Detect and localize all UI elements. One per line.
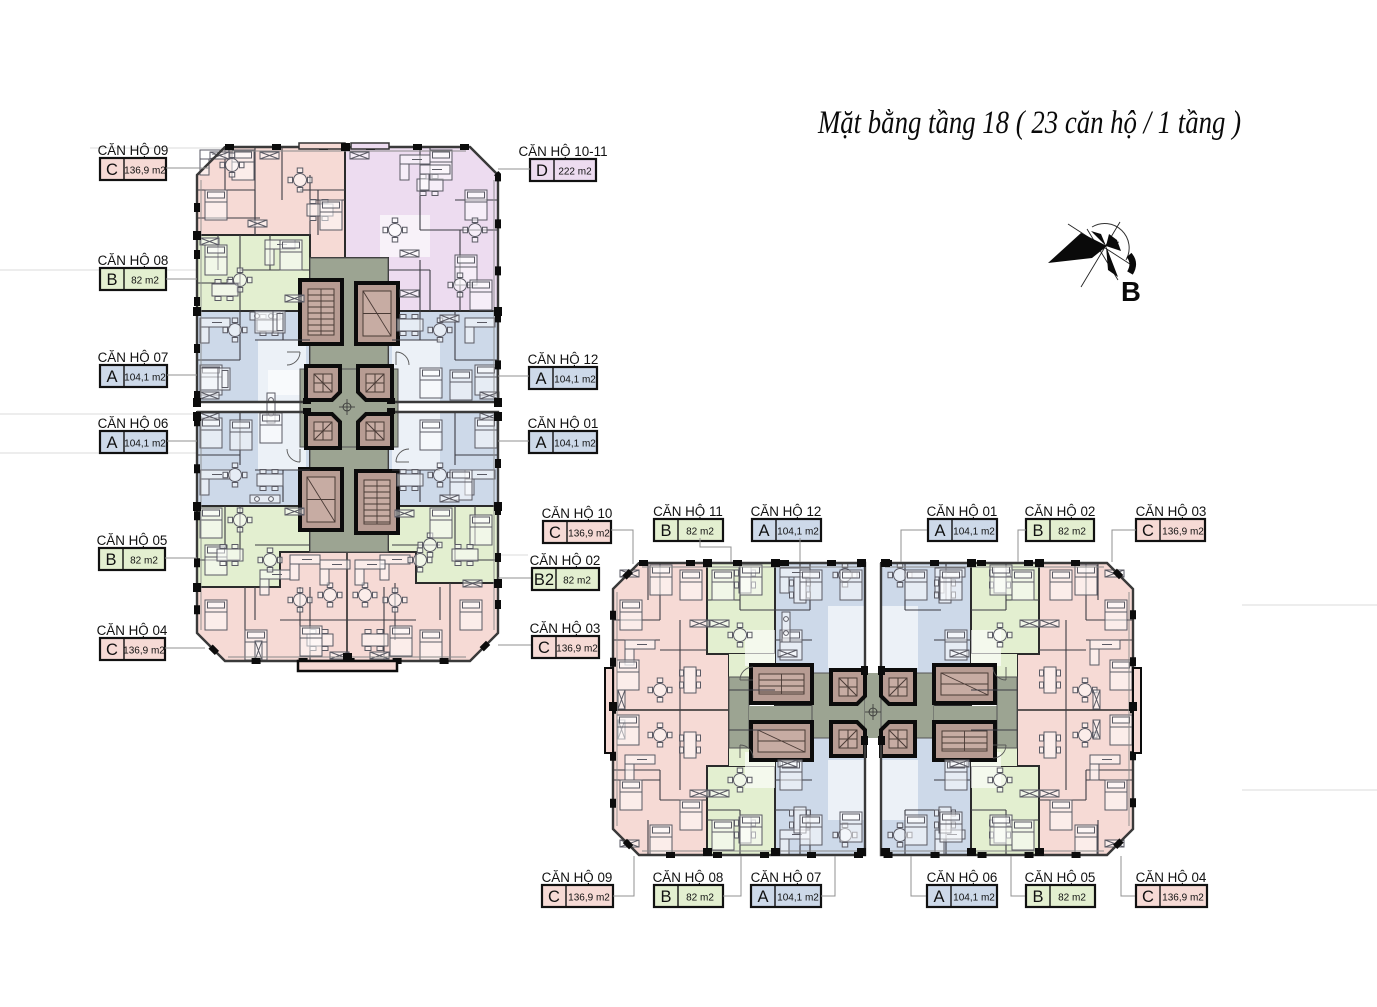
svg-text:CĂN HỘ 04: CĂN HỘ 04 — [97, 623, 168, 638]
svg-text:B: B — [105, 551, 116, 569]
svg-text:CĂN HỘ 10-11: CĂN HỘ 10-11 — [518, 144, 607, 159]
svg-text:104,1 m2: 104,1 m2 — [953, 527, 995, 538]
svg-text:A: A — [106, 434, 117, 452]
svg-text:104,1 m2: 104,1 m2 — [777, 527, 819, 538]
svg-text:104,1 m2: 104,1 m2 — [124, 373, 166, 384]
svg-text:136,9 m2: 136,9 m2 — [123, 646, 165, 657]
svg-text:D: D — [536, 162, 548, 180]
svg-text:82 m2: 82 m2 — [1058, 527, 1086, 538]
svg-text:A: A — [535, 434, 546, 452]
svg-text:A: A — [758, 522, 769, 540]
svg-text:104,1 m2: 104,1 m2 — [554, 439, 596, 450]
svg-text:CĂN HỘ 07: CĂN HỘ 07 — [751, 870, 822, 885]
svg-text:136,9 m2: 136,9 m2 — [568, 529, 610, 540]
svg-text:104,1 m2: 104,1 m2 — [554, 375, 596, 386]
svg-text:222 m2: 222 m2 — [558, 167, 592, 178]
svg-text:C: C — [1142, 888, 1154, 906]
svg-text:CĂN HỘ 02: CĂN HỘ 02 — [530, 553, 601, 568]
svg-text:82 m2: 82 m2 — [563, 576, 591, 587]
svg-text:C: C — [106, 641, 118, 659]
svg-text:C: C — [1142, 522, 1154, 540]
svg-text:B2: B2 — [534, 571, 554, 589]
svg-text:C: C — [549, 524, 561, 542]
svg-text:CĂN HỘ 09: CĂN HỘ 09 — [542, 870, 613, 885]
svg-text:Mặt bằng tầng 18 ( 23 căn hộ /: Mặt bằng tầng 18 ( 23 căn hộ / 1 tầng ) — [817, 105, 1241, 141]
svg-text:CĂN HỘ 01: CĂN HỘ 01 — [927, 504, 998, 519]
svg-text:136,9 m2: 136,9 m2 — [568, 893, 610, 904]
svg-text:104,1 m2: 104,1 m2 — [124, 439, 166, 450]
svg-text:A: A — [535, 370, 546, 388]
svg-text:CĂN HỘ 08: CĂN HỘ 08 — [98, 253, 169, 268]
svg-text:B: B — [1032, 522, 1043, 540]
svg-text:CĂN HỘ 01: CĂN HỘ 01 — [528, 416, 599, 431]
svg-text:136,9 m2: 136,9 m2 — [124, 166, 166, 177]
svg-text:CĂN HỘ 02: CĂN HỘ 02 — [1025, 504, 1096, 519]
svg-text:A: A — [934, 522, 945, 540]
svg-text:136,9 m2: 136,9 m2 — [556, 644, 598, 655]
svg-text:CĂN HỘ 11: CĂN HỘ 11 — [653, 504, 723, 519]
svg-text:CĂN HỘ 10: CĂN HỘ 10 — [542, 506, 613, 521]
svg-text:CĂN HỘ 09: CĂN HỘ 09 — [98, 143, 169, 158]
svg-text:CĂN HỘ 05: CĂN HỘ 05 — [1025, 870, 1096, 885]
svg-text:82 m2: 82 m2 — [1058, 893, 1086, 904]
svg-text:CĂN HỘ 12: CĂN HỘ 12 — [528, 352, 599, 367]
svg-text:CĂN HỘ 12: CĂN HỘ 12 — [751, 504, 822, 519]
svg-text:82 m2: 82 m2 — [130, 556, 158, 567]
svg-text:A: A — [757, 888, 768, 906]
svg-text:104,1 m2: 104,1 m2 — [777, 893, 819, 904]
svg-text:B: B — [106, 271, 117, 289]
svg-text:C: C — [106, 161, 118, 179]
svg-text:136,9 m2: 136,9 m2 — [1162, 527, 1204, 538]
svg-text:CĂN HỘ 03: CĂN HỘ 03 — [1136, 504, 1207, 519]
svg-text:B: B — [1121, 276, 1141, 307]
svg-text:104,1 m2: 104,1 m2 — [953, 893, 995, 904]
svg-text:C: C — [538, 639, 550, 657]
svg-text:A: A — [106, 368, 117, 386]
svg-text:CĂN HỘ 08: CĂN HỘ 08 — [653, 870, 724, 885]
svg-text:B: B — [1032, 888, 1043, 906]
svg-text:C: C — [548, 888, 560, 906]
svg-text:CĂN HỘ 04: CĂN HỘ 04 — [1136, 870, 1207, 885]
svg-text:B: B — [660, 522, 671, 540]
svg-text:A: A — [933, 888, 944, 906]
svg-text:82 m2: 82 m2 — [686, 527, 714, 538]
svg-text:B: B — [660, 888, 671, 906]
svg-text:CĂN HỘ 06: CĂN HỘ 06 — [98, 416, 169, 431]
svg-text:CĂN HỘ 03: CĂN HỘ 03 — [530, 621, 601, 636]
svg-text:CĂN HỘ 06: CĂN HỘ 06 — [927, 870, 998, 885]
svg-text:136,9 m2: 136,9 m2 — [1162, 893, 1204, 904]
svg-text:82 m2: 82 m2 — [686, 893, 714, 904]
svg-text:CĂN HỘ 07: CĂN HỘ 07 — [98, 350, 169, 365]
svg-text:82 m2: 82 m2 — [131, 276, 159, 287]
svg-text:CĂN HỘ 05: CĂN HỘ 05 — [97, 533, 168, 548]
